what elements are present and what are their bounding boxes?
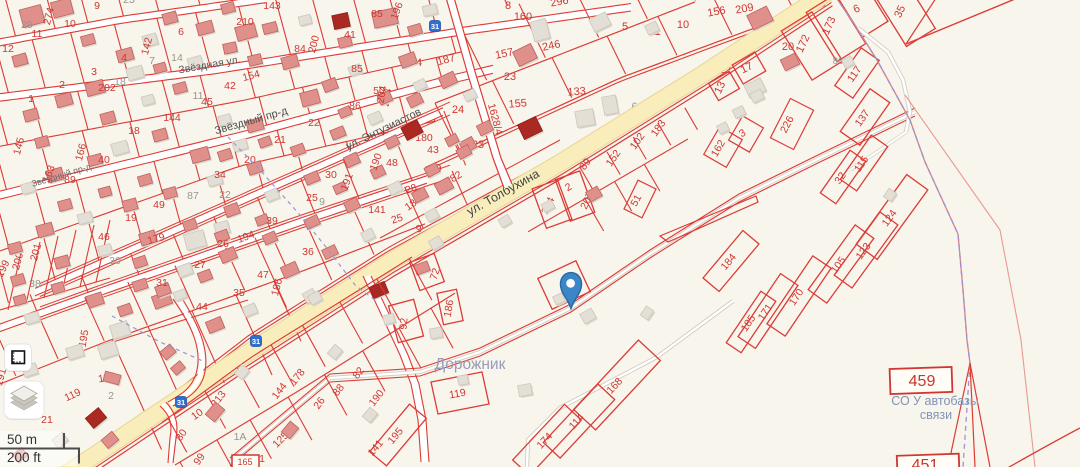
svg-text:86: 86 — [349, 100, 361, 112]
svg-text:34: 34 — [214, 169, 226, 181]
svg-text:10: 10 — [64, 18, 76, 30]
svg-text:165: 165 — [237, 457, 252, 467]
svg-text:35: 35 — [233, 287, 245, 299]
svg-text:44: 44 — [196, 301, 208, 313]
svg-text:4: 4 — [121, 52, 127, 64]
svg-text:14: 14 — [171, 52, 183, 64]
svg-text:3: 3 — [91, 66, 97, 78]
svg-text:9: 9 — [94, 0, 100, 12]
svg-text:141: 141 — [368, 204, 386, 216]
svg-text:22: 22 — [219, 189, 231, 201]
svg-text:31: 31 — [252, 337, 260, 346]
svg-text:18: 18 — [128, 125, 140, 137]
svg-text:30: 30 — [325, 169, 337, 181]
svg-text:18: 18 — [114, 76, 126, 88]
svg-text:11: 11 — [32, 28, 43, 40]
svg-text:23: 23 — [504, 71, 516, 83]
svg-text:49: 49 — [153, 199, 165, 211]
svg-text:6: 6 — [178, 26, 184, 38]
svg-text:50 m: 50 m — [7, 432, 37, 447]
svg-text:31: 31 — [156, 277, 168, 289]
svg-text:27: 27 — [194, 259, 206, 271]
svg-text:30: 30 — [109, 255, 121, 267]
svg-text:41: 41 — [344, 29, 356, 41]
svg-text:43: 43 — [427, 144, 439, 156]
svg-text:1: 1 — [259, 453, 265, 465]
svg-text:12: 12 — [2, 43, 14, 55]
svg-text:Дорожник: Дорожник — [435, 356, 506, 373]
svg-text:40: 40 — [98, 154, 110, 166]
svg-text:8: 8 — [505, 0, 511, 12]
svg-text:155: 155 — [508, 97, 527, 111]
svg-text:85: 85 — [351, 63, 363, 75]
svg-text:23: 23 — [123, 0, 135, 6]
svg-text:46: 46 — [98, 231, 110, 243]
svg-text:2: 2 — [59, 79, 65, 91]
svg-text:87: 87 — [187, 190, 199, 202]
svg-text:451: 451 — [912, 457, 939, 467]
svg-text:2: 2 — [108, 390, 114, 402]
svg-text:СО У автобазы: СО У автобазы — [891, 394, 979, 408]
svg-text:31: 31 — [177, 398, 185, 407]
svg-text:143: 143 — [263, 0, 281, 12]
svg-text:86: 86 — [833, 56, 844, 67]
svg-text:133: 133 — [567, 85, 586, 99]
svg-text:1: 1 — [28, 93, 34, 105]
svg-text:47: 47 — [257, 269, 269, 281]
svg-text:45: 45 — [201, 96, 213, 108]
svg-text:459: 459 — [909, 373, 936, 390]
svg-text:160: 160 — [514, 11, 532, 23]
svg-text:48: 48 — [386, 157, 398, 169]
svg-text:9: 9 — [319, 196, 325, 208]
svg-text:144: 144 — [163, 112, 181, 124]
svg-text:42: 42 — [224, 80, 236, 92]
svg-text:24: 24 — [452, 104, 464, 116]
svg-text:связи: связи — [920, 408, 952, 422]
svg-text:31: 31 — [431, 22, 439, 31]
svg-text:36: 36 — [302, 246, 314, 258]
svg-text:210: 210 — [236, 16, 254, 28]
svg-text:19: 19 — [125, 212, 137, 224]
svg-text:7: 7 — [149, 55, 155, 67]
svg-text:25: 25 — [306, 192, 318, 204]
svg-text:5: 5 — [622, 21, 628, 33]
svg-text:20: 20 — [782, 41, 794, 53]
svg-text:84: 84 — [294, 43, 306, 55]
svg-text:26: 26 — [217, 238, 229, 250]
svg-text:22: 22 — [308, 117, 320, 129]
svg-text:21: 21 — [274, 134, 286, 146]
svg-text:39: 39 — [266, 215, 278, 227]
svg-text:10: 10 — [677, 19, 689, 31]
svg-text:200 ft: 200 ft — [7, 450, 41, 465]
svg-text:85: 85 — [371, 8, 383, 20]
svg-text:1А: 1А — [234, 431, 247, 443]
